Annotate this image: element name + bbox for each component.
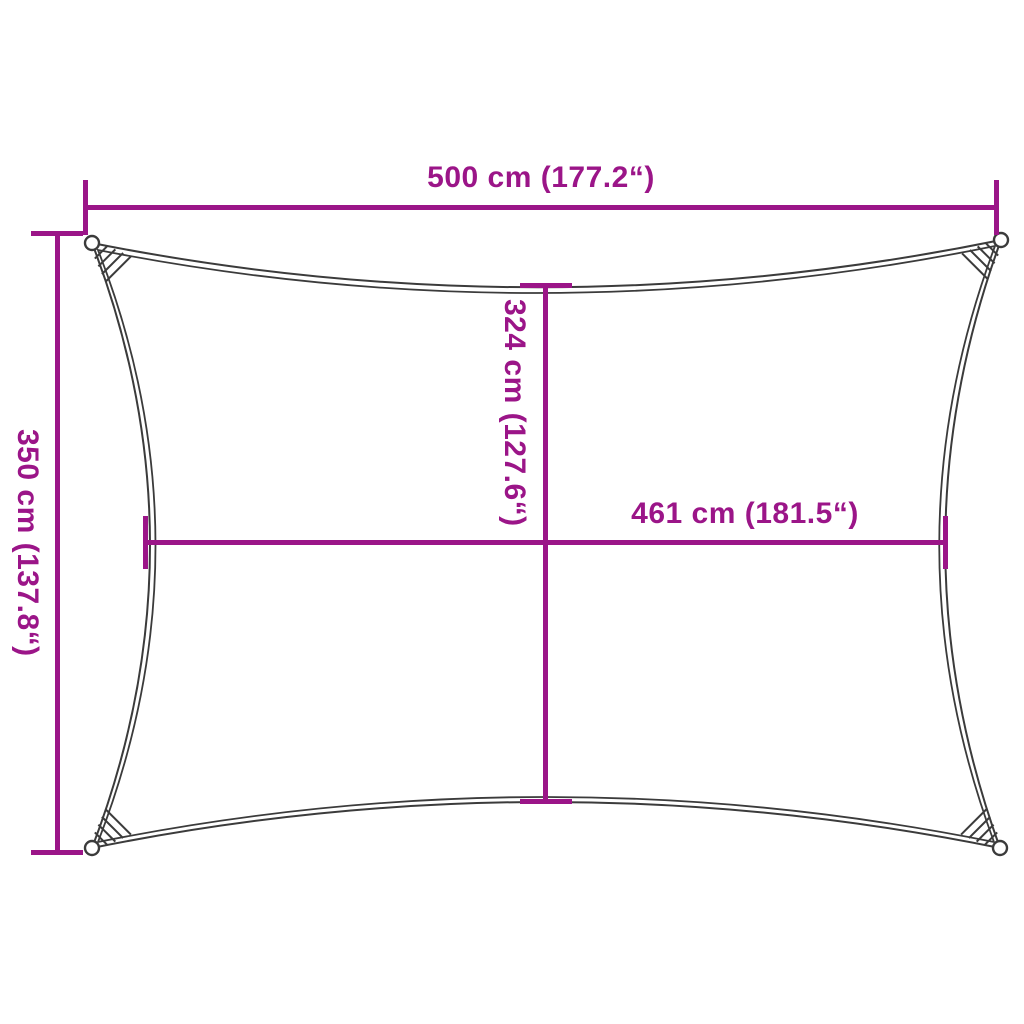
dimension-label-center-vertical-text: 324 cm (127.6“) bbox=[498, 299, 530, 527]
dimension-label-center-horizontal: 461 cm (181.5“) bbox=[545, 498, 945, 530]
dimension-label-left-text: 350 cm (137.8“) bbox=[11, 429, 43, 657]
dimension-cap-center-left bbox=[143, 516, 148, 569]
dimension-label-left: 350 cm (137.8“) bbox=[6, 233, 48, 853]
corner-bottom-left-icon bbox=[74, 809, 131, 866]
dimension-cap-center-bottom bbox=[520, 799, 572, 804]
diagram-canvas: 500 cm (177.2“) 350 cm (137.8“) 324 cm (… bbox=[0, 0, 1024, 1024]
dimension-line-center-horizontal bbox=[145, 540, 945, 545]
corner-top-right-icon bbox=[962, 222, 1019, 279]
dimension-label-center-vertical: 324 cm (127.6“) bbox=[493, 288, 535, 538]
dimension-label-top: 500 cm (177.2“) bbox=[85, 162, 997, 194]
corner-bottom-right-icon bbox=[961, 809, 1018, 866]
dimension-line-top bbox=[85, 205, 997, 210]
dimension-line-left bbox=[55, 233, 60, 853]
